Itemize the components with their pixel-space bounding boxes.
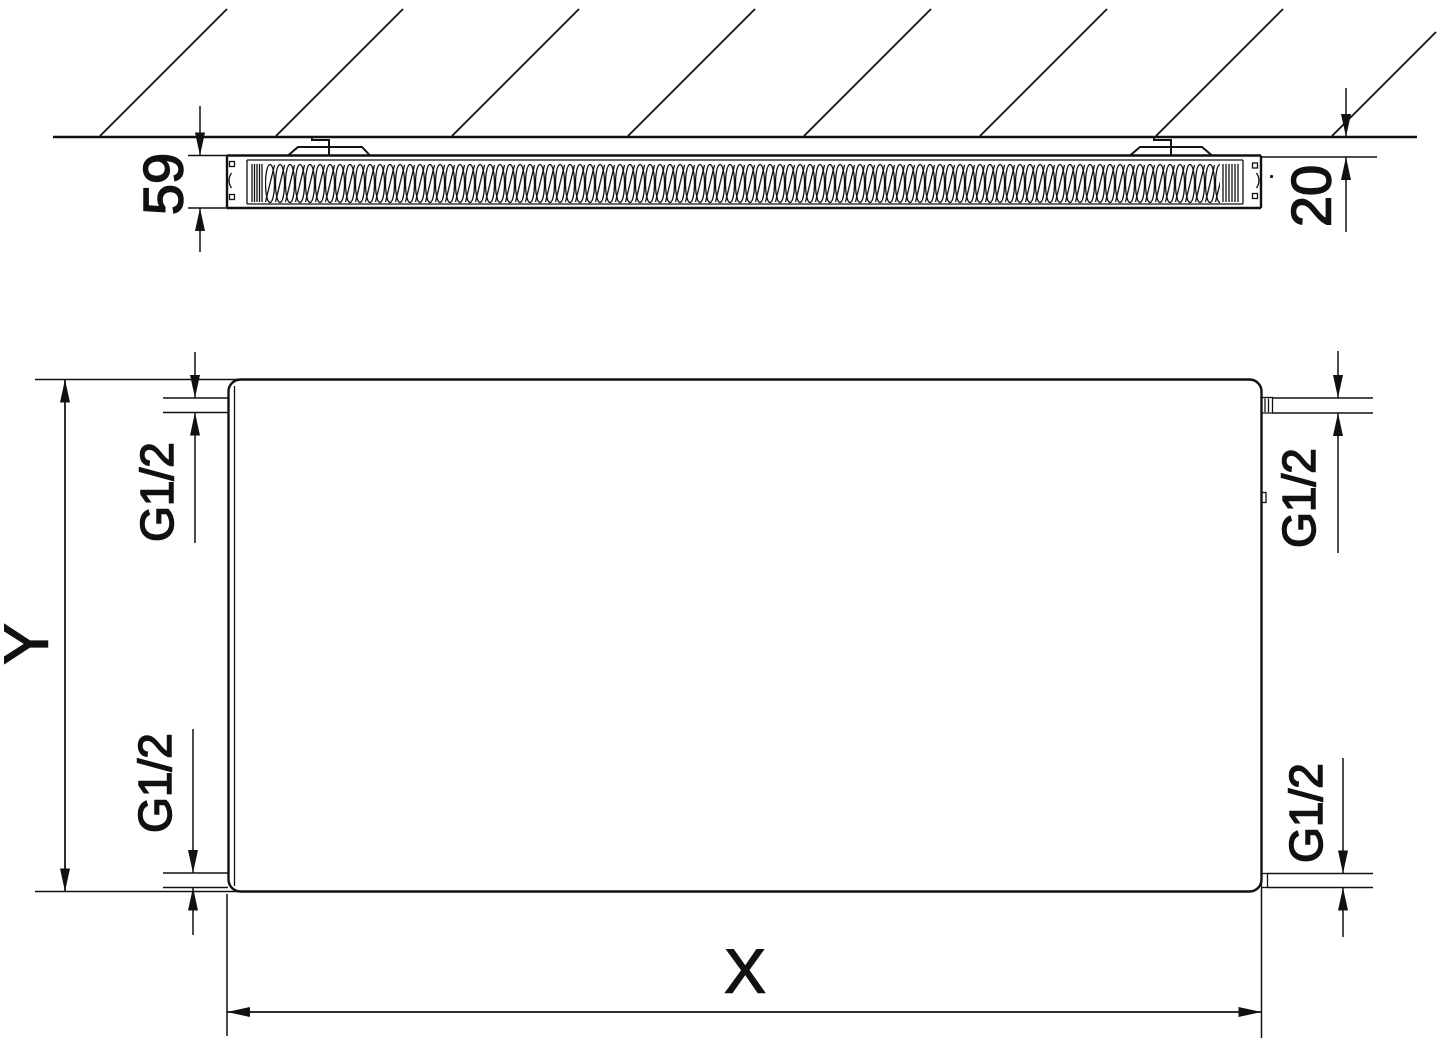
height-dimension-label: Y bbox=[0, 623, 62, 664]
width-dimension-label: X bbox=[724, 938, 765, 1007]
radiator-top-view-body bbox=[227, 156, 1273, 209]
radiator-technical-drawing: 59 20 Y bbox=[0, 0, 1437, 1049]
front-view-section: Y X G1/2 G1/2 bbox=[0, 351, 1373, 1038]
radiator-front-panel bbox=[229, 380, 1262, 892]
port-thread-label-top-left: G1/2 bbox=[131, 442, 183, 542]
port-thread-label-bottom-right: G1/2 bbox=[1280, 763, 1332, 863]
connection-stub-top-right bbox=[1262, 398, 1273, 414]
mounting-bracket-left bbox=[288, 137, 370, 156]
dimension-width-x: X bbox=[227, 888, 1262, 1038]
dimension-port-bottom-left: G1/2 bbox=[129, 729, 228, 935]
dimension-port-top-right: G1/2 bbox=[1273, 351, 1374, 553]
port-thread-label-bottom-left: G1/2 bbox=[129, 733, 181, 833]
convector-fins bbox=[265, 163, 1220, 204]
wall-hatching bbox=[100, 9, 1436, 136]
fin-end-block-left bbox=[252, 164, 262, 202]
depth-dimension-label: 59 bbox=[132, 153, 195, 215]
dimension-depth: 59 bbox=[132, 106, 228, 252]
wall-distance-dimension-label: 20 bbox=[1280, 165, 1343, 227]
end-cap-right bbox=[1243, 160, 1273, 204]
dimension-port-bottom-right: G1/2 bbox=[1268, 758, 1374, 937]
fin-end-block-right bbox=[1223, 164, 1238, 202]
top-view-section: 59 20 bbox=[53, 9, 1436, 252]
mounting-bracket-right bbox=[1130, 137, 1212, 156]
dimension-port-top-left: G1/2 bbox=[131, 352, 228, 543]
dimension-height-y: Y bbox=[0, 380, 248, 892]
radiator-dimension-drawing: 59 20 Y bbox=[0, 0, 1437, 1049]
end-cap-left bbox=[229, 160, 247, 204]
port-thread-label-top-right: G1/2 bbox=[1273, 448, 1325, 548]
